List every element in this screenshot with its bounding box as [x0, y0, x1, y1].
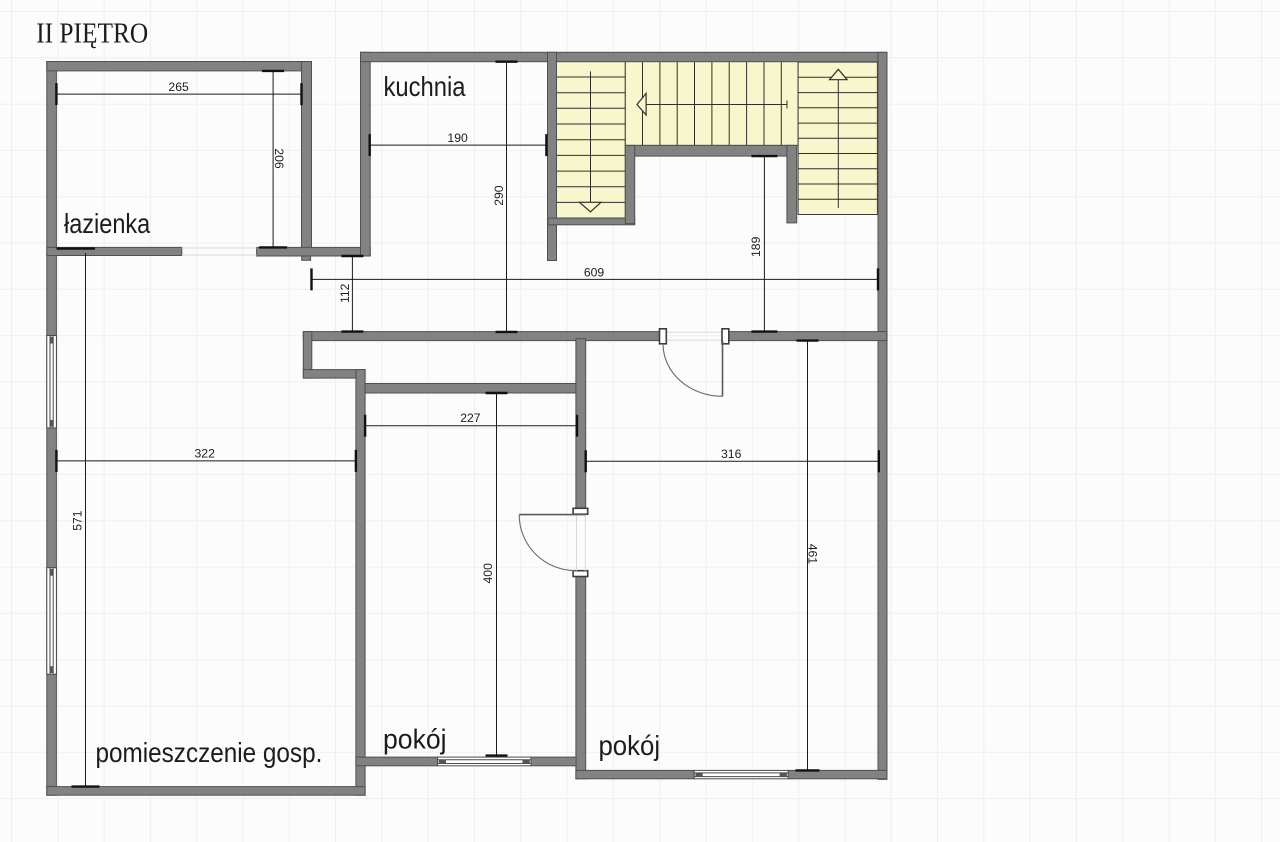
svg-text:pomieszczenie gosp.: pomieszczenie gosp. [96, 736, 323, 768]
svg-text:kuchnia: kuchnia [384, 70, 466, 102]
svg-text:400: 400 [481, 563, 495, 584]
svg-text:112: 112 [338, 283, 352, 303]
svg-text:290: 290 [492, 185, 506, 206]
svg-text:pokój: pokój [383, 723, 447, 755]
svg-text:189: 189 [749, 236, 763, 257]
svg-text:227: 227 [460, 411, 481, 425]
svg-text:II PIĘTRO: II PIĘTRO [36, 17, 148, 49]
svg-text:461: 461 [805, 544, 819, 565]
svg-text:609: 609 [584, 265, 605, 279]
svg-text:pokój: pokój [599, 730, 661, 761]
svg-text:206: 206 [272, 148, 286, 169]
svg-text:265: 265 [168, 80, 189, 94]
svg-text:316: 316 [721, 447, 742, 461]
svg-text:571: 571 [70, 510, 84, 531]
svg-text:łazienka: łazienka [64, 209, 151, 239]
svg-text:322: 322 [195, 447, 216, 461]
svg-text:190: 190 [447, 131, 468, 145]
